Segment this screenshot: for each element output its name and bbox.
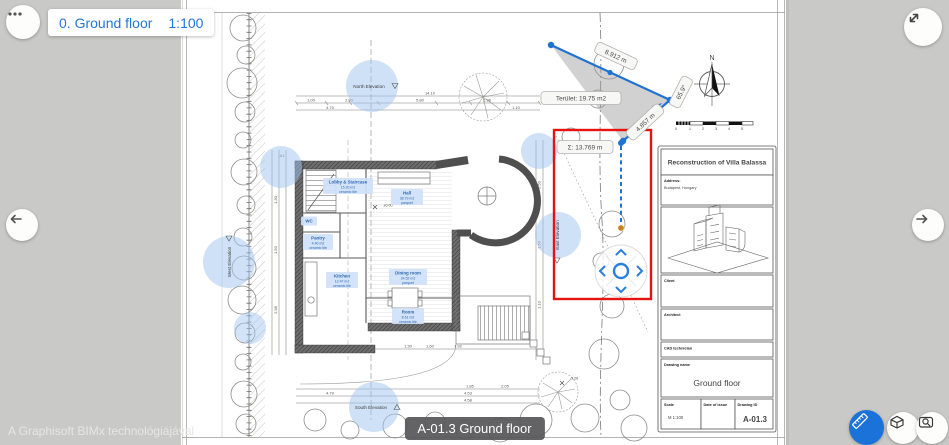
svg-text:2.98: 2.98 xyxy=(273,305,278,314)
floor-selector-scale: 1:100 xyxy=(168,15,203,31)
svg-text:ceramic tile: ceramic tile xyxy=(333,284,351,288)
floor-selector[interactable]: 0. Ground floor 1:100 xyxy=(48,9,214,36)
svg-text:Address:: Address: xyxy=(664,179,680,183)
hotspot-circle[interactable] xyxy=(260,146,302,188)
model-cube-icon xyxy=(887,412,907,432)
svg-text:Terület: 19.75 m2: Terület: 19.75 m2 xyxy=(556,96,607,103)
svg-text:CAD technician: CAD technician xyxy=(664,347,693,351)
svg-text:Kitchen: Kitchen xyxy=(334,273,350,278)
svg-text:Drawing ID: Drawing ID xyxy=(738,403,758,407)
drawing-sheet: 14.10 1.00 2.80 5.80 4.70 2.98 1.10 2.16… xyxy=(0,0,949,445)
svg-text:ceramic tile: ceramic tile xyxy=(339,190,357,194)
room-chip-pantry[interactable]: Pantry 4.40 m2 ceramic tile xyxy=(303,234,333,250)
svg-text:1.10: 1.10 xyxy=(537,300,542,309)
more-options-button[interactable] xyxy=(6,5,40,39)
next-sheet-button[interactable] xyxy=(912,209,944,241)
svg-text:1.60: 1.60 xyxy=(426,344,435,349)
svg-text:1.10: 1.10 xyxy=(512,105,521,110)
svg-text:North Elevation: North Elevation xyxy=(353,84,385,89)
measure-handle[interactable] xyxy=(548,42,554,48)
svg-text:Date of issue: Date of issue xyxy=(704,403,728,407)
svg-text:2.05: 2.05 xyxy=(501,384,510,389)
svg-text:ceramic tile: ceramic tile xyxy=(309,246,327,250)
svg-text:4.58: 4.58 xyxy=(464,398,473,403)
titleblock-scale-value: M 1:100 xyxy=(668,415,684,420)
expand-icon xyxy=(904,8,924,28)
svg-text:West Elevation: West Elevation xyxy=(227,246,232,277)
svg-text:1.30: 1.30 xyxy=(273,195,278,204)
svg-text:1.85: 1.85 xyxy=(466,384,475,389)
svg-text:East Elevation: East Elevation xyxy=(555,220,560,250)
svg-text:Drawing name: Drawing name xyxy=(664,363,690,367)
svg-text:14.10: 14.10 xyxy=(425,91,436,96)
room-chip-lobby[interactable]: Lobby & Staircase 15.20 m2 ceramic tile xyxy=(323,178,373,194)
bimx-viewer: 14.10 1.00 2.80 5.80 4.70 2.98 1.10 2.16… xyxy=(0,0,949,445)
bimx-watermark: A Graphisoft BIMx technológiájával xyxy=(8,424,194,438)
svg-text:Room: Room xyxy=(402,309,415,314)
svg-text:4.70: 4.70 xyxy=(326,105,335,110)
zoom-area-button[interactable] xyxy=(916,412,948,444)
svg-text:1.00: 1.00 xyxy=(307,98,316,103)
svg-text:4.79: 4.79 xyxy=(326,391,335,396)
room-chip-hall[interactable]: Hall 38.79 m2 parquet xyxy=(391,189,423,205)
svg-text:Client: Client xyxy=(664,279,675,283)
svg-text:Σ: 13.769 m: Σ: 13.769 m xyxy=(568,145,603,152)
dpad-center[interactable] xyxy=(614,264,628,278)
svg-text:Pantry: Pantry xyxy=(311,235,325,240)
arrow-left-icon xyxy=(6,209,26,229)
svg-text:4.53: 4.53 xyxy=(464,391,473,396)
dpad-control xyxy=(595,245,647,297)
svg-text:5.80: 5.80 xyxy=(416,98,425,103)
svg-text:1.50: 1.50 xyxy=(273,245,278,254)
title-block: Reconstruction of Villa Balassa Address:… xyxy=(658,146,776,432)
hotspot-circle[interactable] xyxy=(234,312,266,344)
room-chip-room[interactable]: Room 8.61 m2 ceramic tile xyxy=(392,308,424,324)
svg-text:parquet: parquet xyxy=(401,201,413,205)
svg-text:2.98: 2.98 xyxy=(483,98,492,103)
svg-text:Dining room: Dining room xyxy=(395,270,421,275)
room-chip-wc[interactable]: WC xyxy=(301,217,317,226)
fullscreen-button[interactable] xyxy=(904,8,942,46)
hotspot-west-elevation[interactable]: West Elevation xyxy=(203,236,255,288)
model-view-button[interactable] xyxy=(887,412,919,444)
previous-sheet-button[interactable] xyxy=(6,209,38,241)
svg-text:WC: WC xyxy=(305,219,313,224)
svg-text:South Elevation: South Elevation xyxy=(355,405,388,410)
measure-label-total: Σ: 13.769 m xyxy=(557,141,613,154)
measure-handle[interactable] xyxy=(607,70,612,75)
room-chip-dining[interactable]: Dining room 24.52 m2 parquet xyxy=(389,269,427,285)
ellipsis-icon xyxy=(6,5,24,23)
titleblock-drawing-id: A-01.3 xyxy=(743,415,768,424)
hotspot-circle[interactable] xyxy=(521,133,557,169)
measure-handle[interactable] xyxy=(618,140,624,146)
svg-text:-3.26: -3.26 xyxy=(570,377,578,381)
north-label: N xyxy=(709,55,714,62)
floor-selector-label: 0. Ground floor xyxy=(59,15,152,31)
titleblock-drawing-name: Ground floor xyxy=(693,378,740,388)
svg-text:Lobby & Staircase: Lobby & Staircase xyxy=(329,179,368,184)
svg-text:Hall: Hall xyxy=(403,190,411,195)
measure-tool-button[interactable] xyxy=(849,410,884,445)
svg-text:parquet: parquet xyxy=(402,281,414,285)
svg-text:Scale: Scale xyxy=(664,403,674,407)
svg-text:ceramic tile: ceramic tile xyxy=(399,320,417,324)
hotspot-north-elevation[interactable]: North Elevation xyxy=(346,60,398,112)
measure-endpoint-pending[interactable] xyxy=(618,225,624,231)
room-chip-kitchen[interactable]: Kitchen 12.47 m2 ceramic tile xyxy=(326,272,358,288)
titleblock-address: Budapest, Hungary xyxy=(664,186,697,190)
zoom-area-icon xyxy=(916,412,936,432)
arrow-right-icon xyxy=(912,209,932,229)
sheet-name-badge: A-01.3 Ground floor xyxy=(404,417,544,440)
titleblock-title: Reconstruction of Villa Balassa xyxy=(668,160,767,167)
svg-text:1.30: 1.30 xyxy=(404,344,413,349)
ruler-icon xyxy=(849,410,871,432)
svg-text:Architect: Architect xyxy=(664,313,681,317)
measure-label-area: Terület: 19.75 m2 xyxy=(541,92,621,105)
